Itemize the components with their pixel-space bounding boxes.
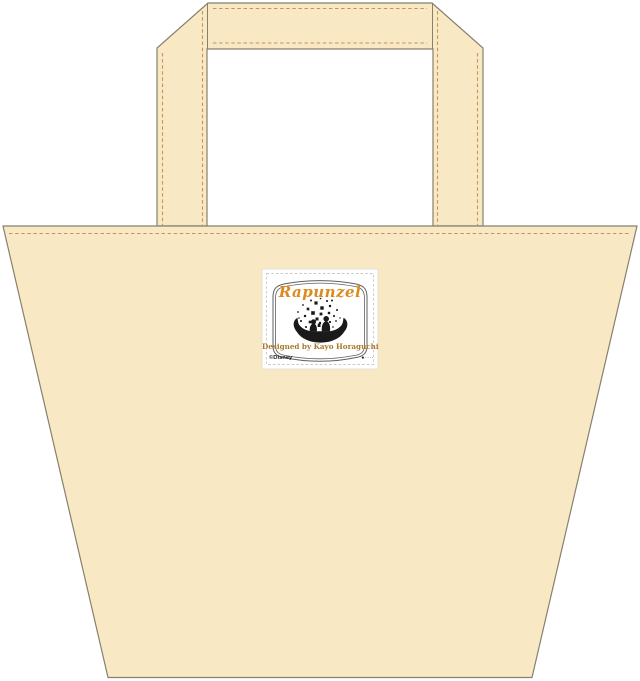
designer-credit: Designed by Kayo Horaguchi (262, 343, 378, 351)
product-image: Rapunzel Designed by Kayo Horaguchi ©Dis… (0, 0, 640, 681)
label-title: Rapunzel (262, 284, 378, 300)
disney-copyright: ©Disney (269, 355, 309, 361)
tote-bag-illustration (0, 0, 640, 681)
product-mark: ●···· (328, 355, 374, 361)
handle-silhouette (157, 3, 483, 226)
handle-strap (157, 3, 483, 226)
